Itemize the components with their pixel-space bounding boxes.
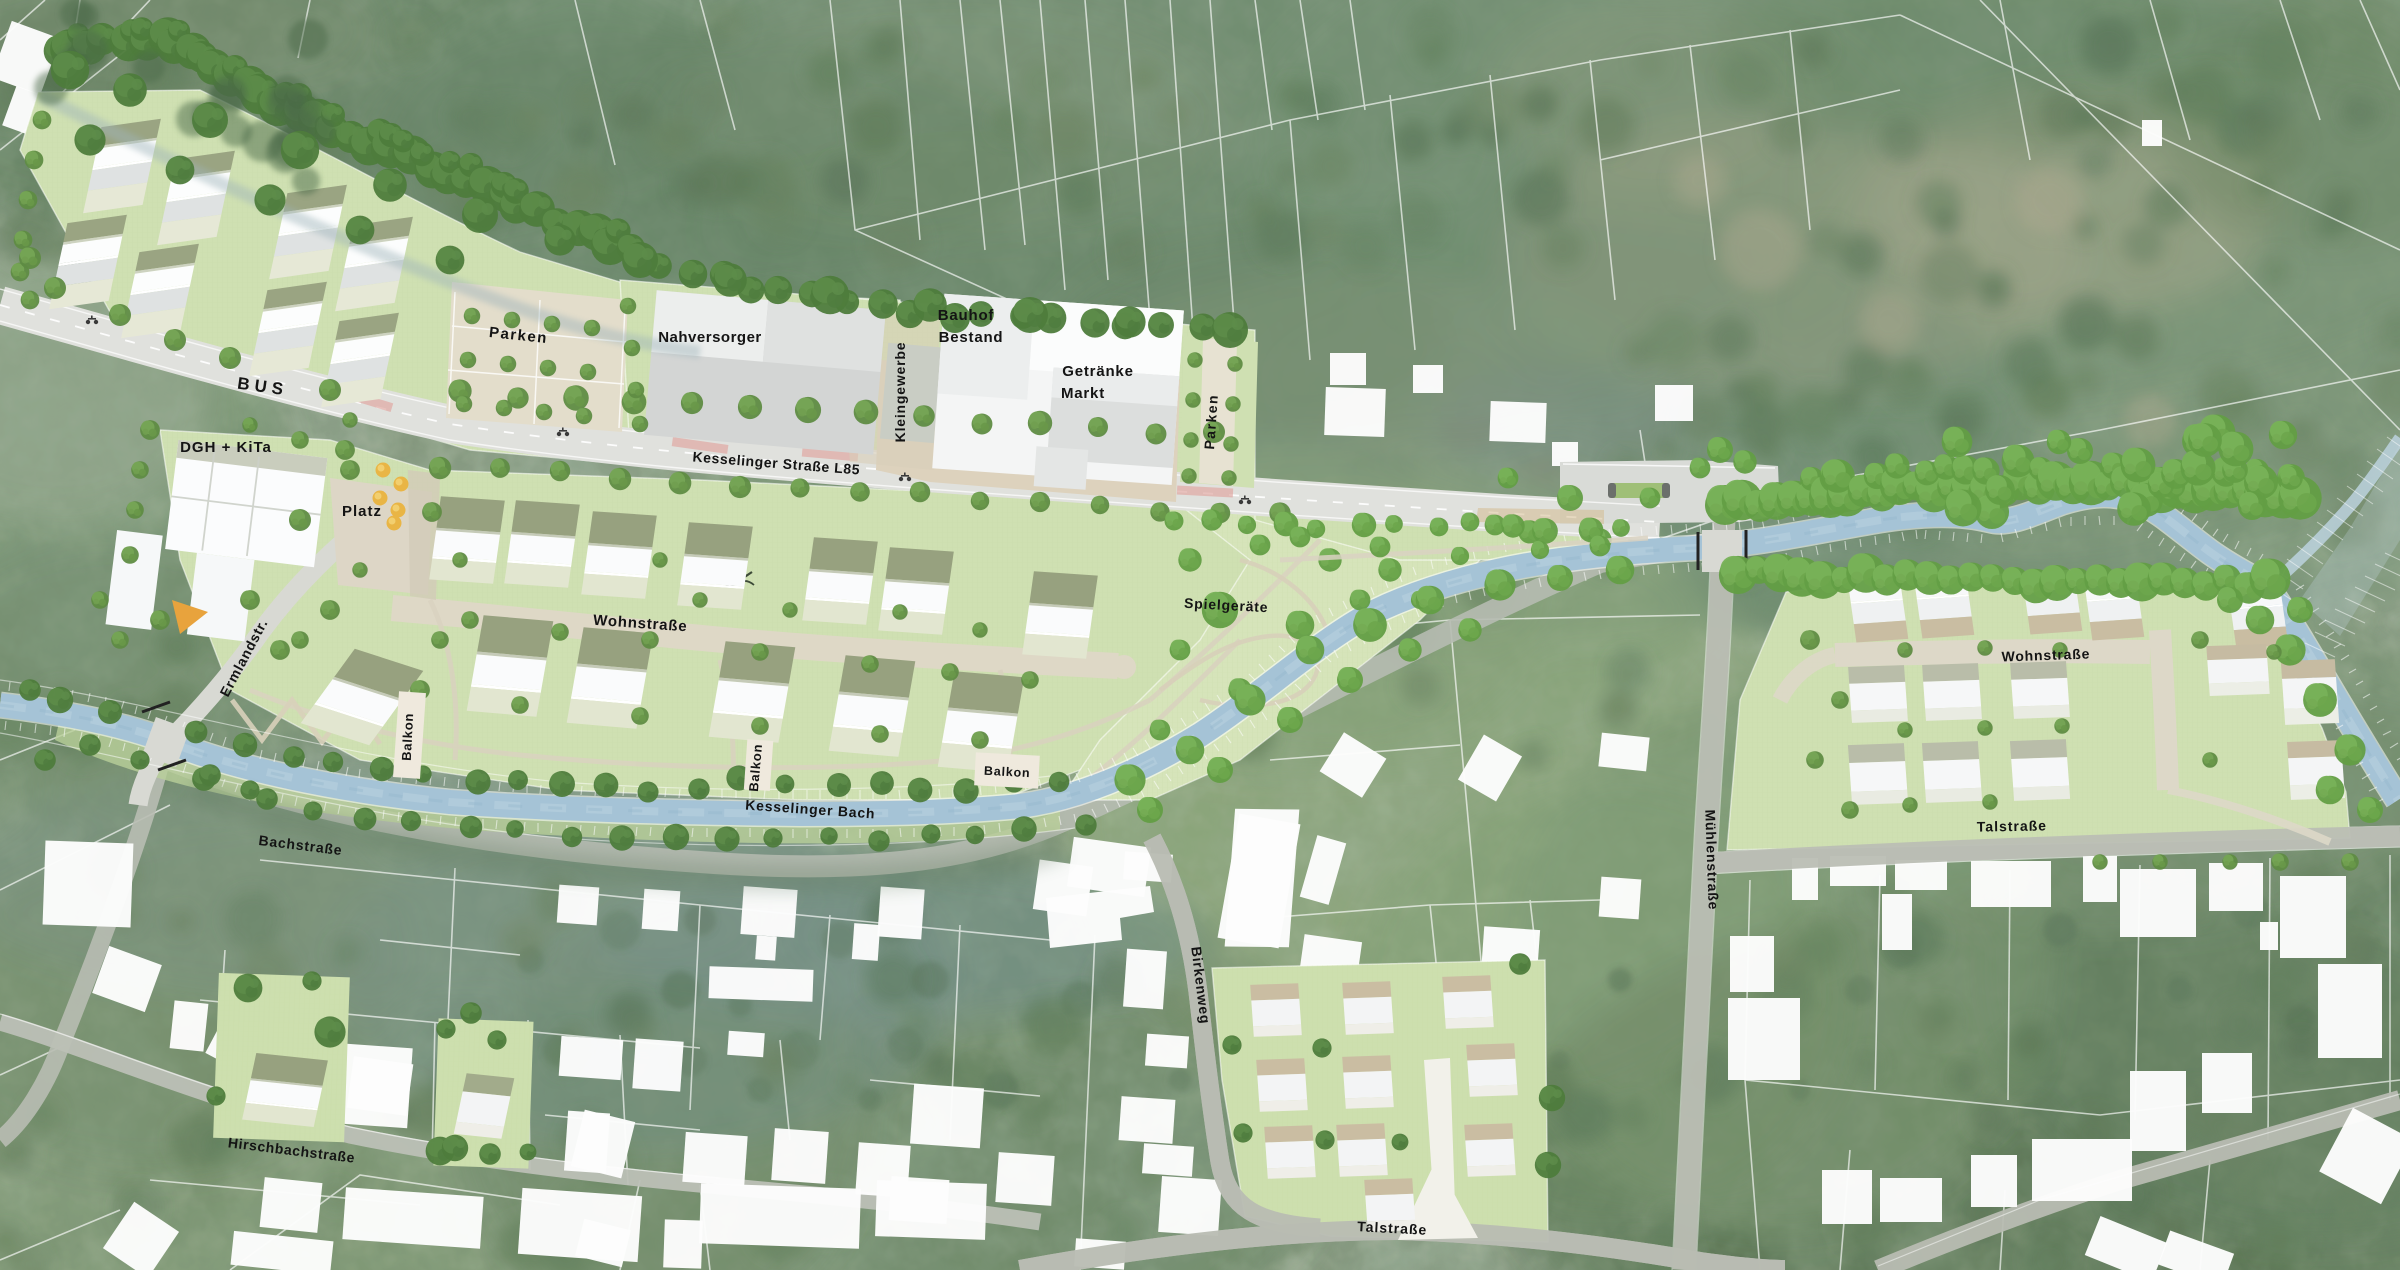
svg-text:Markt: Markt xyxy=(1061,385,1105,402)
svg-text:Getränke: Getränke xyxy=(1062,363,1133,380)
svg-text:DGH + KiTa: DGH + KiTa xyxy=(180,439,272,456)
svg-text:Kleingewerbe: Kleingewerbe xyxy=(892,342,908,443)
svg-text:Balkon: Balkon xyxy=(399,712,416,761)
svg-text:Nahversorger: Nahversorger xyxy=(658,329,762,346)
svg-text:Bauhof: Bauhof xyxy=(938,307,995,324)
svg-text:Wohnstraße: Wohnstraße xyxy=(2001,645,2090,664)
svg-text:Talstraße: Talstraße xyxy=(1977,817,2047,834)
svg-text:Bestand: Bestand xyxy=(939,329,1004,346)
svg-text:Balkon: Balkon xyxy=(984,764,1031,780)
svg-text:Platz: Platz xyxy=(342,503,382,520)
